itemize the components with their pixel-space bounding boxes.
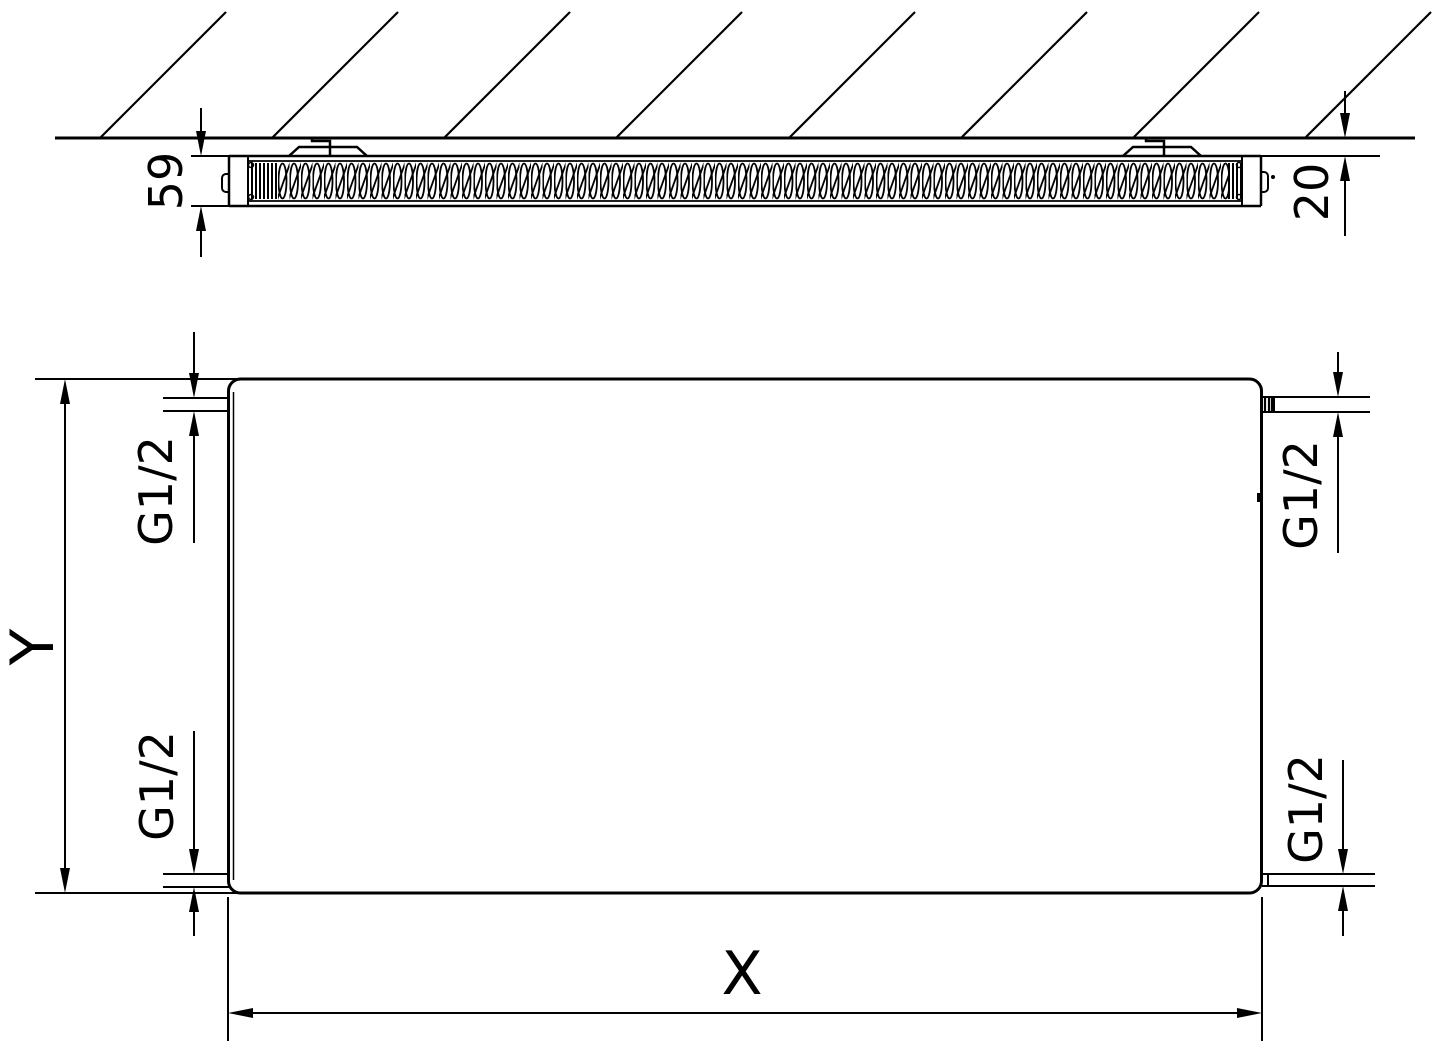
height-dimension-label: Y	[3, 629, 63, 666]
wall-clearance-dimension-label: 20	[1289, 163, 1335, 222]
front-panel	[229, 379, 1263, 893]
mounting-bracket-left	[289, 138, 367, 156]
air-vent-mark	[1257, 493, 1262, 502]
thread-label-top-right: G1/2	[1278, 440, 1324, 550]
dimension-depth-59	[191, 108, 229, 257]
radiator-technical-drawing: 59 20 Y X G1/2 G1/2 G1/2 G1/2	[0, 0, 1437, 1049]
reference-dot	[1271, 175, 1275, 179]
thread-label-bottom-left: G1/2	[134, 731, 180, 841]
depth-dimension-label: 59	[143, 152, 189, 211]
wall-hatching	[100, 12, 1431, 138]
mounting-bracket-right	[1123, 138, 1201, 156]
convector-fins	[252, 162, 1241, 200]
thread-label-bottom-right: G1/2	[1283, 754, 1329, 864]
drawing-linework	[0, 0, 1437, 1049]
length-dimension-label: X	[721, 944, 762, 1004]
thread-label-top-left: G1/2	[133, 436, 179, 546]
